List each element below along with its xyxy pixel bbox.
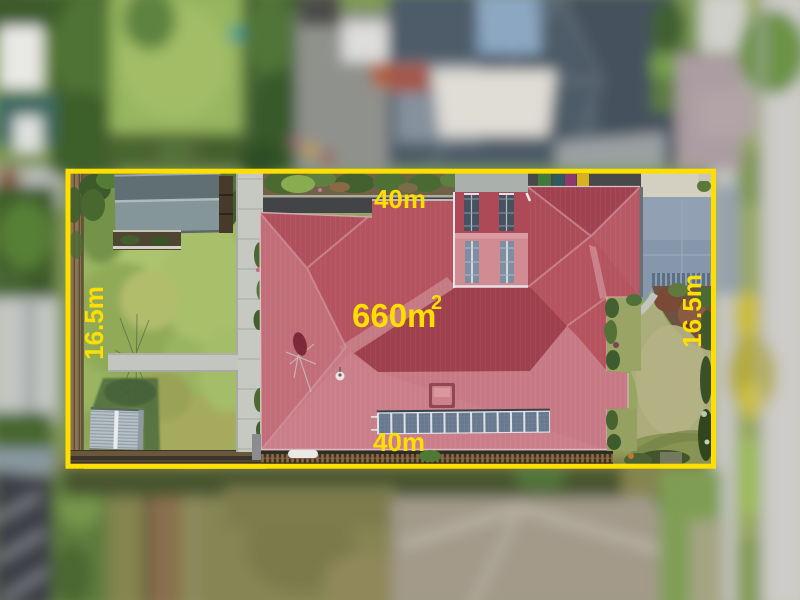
svg-text:660m: 660m — [352, 297, 436, 334]
svg-text:16.5m: 16.5m — [79, 286, 109, 360]
svg-text:40m: 40m — [374, 184, 426, 214]
svg-text:2: 2 — [431, 292, 442, 314]
svg-text:40m: 40m — [373, 427, 425, 457]
svg-text:16.5m: 16.5m — [677, 274, 707, 348]
